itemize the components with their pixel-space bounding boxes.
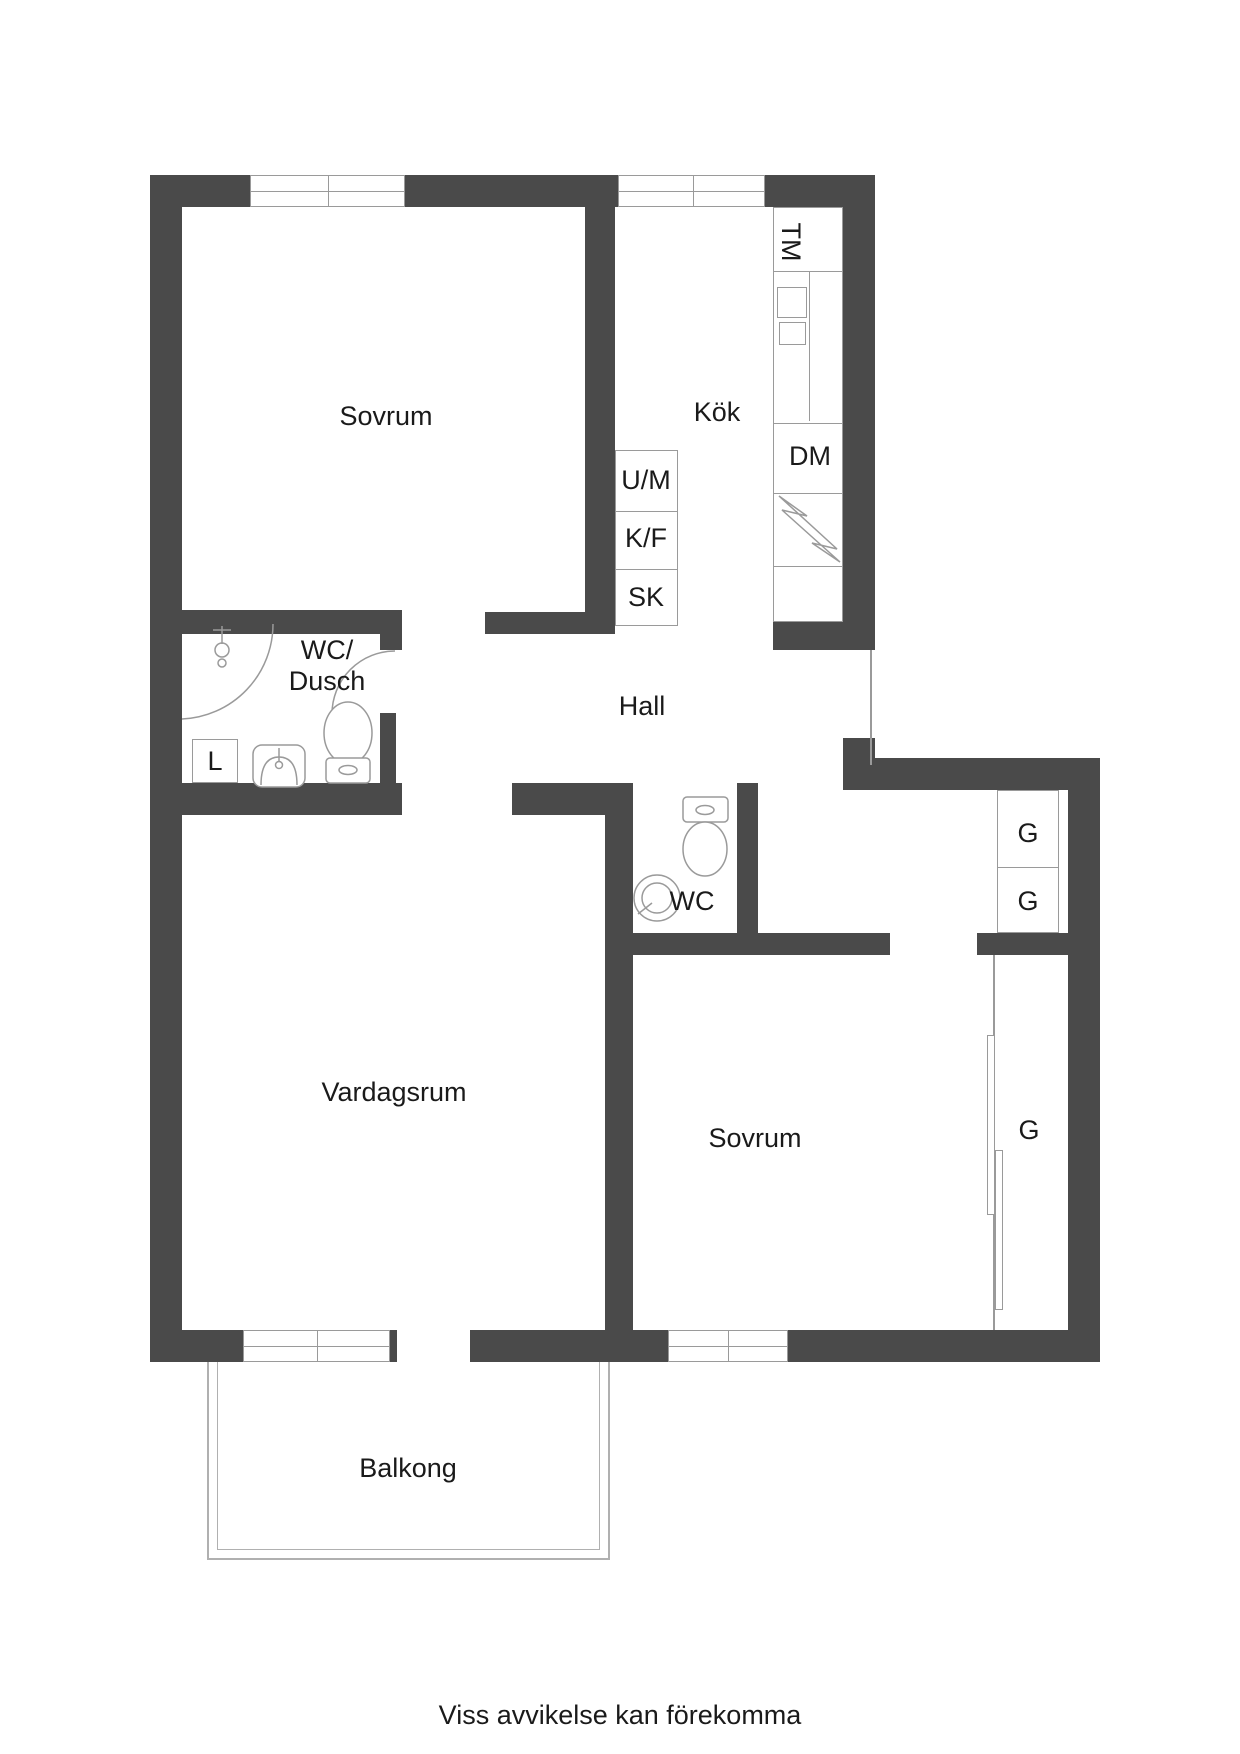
window-kitchen — [618, 175, 765, 207]
shower-arc — [182, 624, 273, 719]
window-bedroom2 — [668, 1330, 788, 1362]
room-label-wc: WC — [670, 886, 715, 916]
label-tall-cabinet: SK — [628, 582, 664, 612]
label-oven-microwave: U/M — [621, 465, 671, 495]
kitchen-sink-basin-1 — [777, 287, 807, 318]
room-label-kitchen: Kök — [694, 397, 741, 427]
wall-bedroom2-top-left — [633, 933, 890, 955]
window-livingroom — [243, 1330, 390, 1362]
room-label-hall: Hall — [619, 691, 666, 721]
disclaimer-text: Viss avvikelse kan förekomma — [0, 1700, 1240, 1731]
label-wardrobe-3: G — [1018, 1115, 1039, 1145]
sliding-door-panel-1 — [987, 1035, 995, 1215]
label-washing-machine: TM — [776, 223, 806, 262]
room-label-livingroom: Vardagsrum — [321, 1077, 466, 1107]
balcony-railing — [207, 1362, 610, 1560]
wall-hall-stub — [485, 612, 615, 634]
kitchen-sink-basin-2 — [779, 322, 806, 345]
wall-bathroom-bottom — [150, 783, 402, 815]
room-label-bathroom-line2: Dusch — [289, 666, 366, 696]
label-linen-cabinet: L — [207, 746, 222, 776]
wall-livingroom-bedroom2 — [605, 783, 633, 1330]
wall-wc-right — [737, 783, 758, 955]
label-dishwasher: DM — [789, 441, 831, 471]
wall-bottom-seg2 — [390, 1330, 397, 1362]
label-wardrobe-2: G — [1017, 886, 1038, 916]
room-label-bedroom2: Sovrum — [708, 1123, 801, 1153]
balcony-railing-inner — [217, 1362, 600, 1550]
label-fridge-freezer: K/F — [625, 523, 667, 553]
wall-bottom-seg1 — [150, 1330, 243, 1362]
wall-entry-top — [875, 758, 1068, 790]
room-label-bathroom-line1: WC/ — [301, 635, 353, 665]
label-wardrobe-1: G — [1017, 818, 1038, 848]
wall-kitchen-right — [843, 207, 875, 650]
wall-bedroom1-kitchen — [585, 207, 615, 634]
wall-left — [150, 175, 182, 1362]
wall-right — [1068, 758, 1100, 1362]
kitchen-counter — [773, 207, 843, 622]
wall-bathroom-door-jamb-upper — [380, 634, 402, 650]
wall-bottom-seg4 — [788, 1330, 1100, 1362]
bathroom-toilet-icon — [324, 702, 372, 783]
entrance-door-line — [870, 650, 872, 765]
wall-bedroom2-top-right — [977, 933, 1068, 955]
floor-plan: Sovrum Kök Hall WC/ Dusch WC Vardagsrum … — [0, 0, 1240, 1754]
wall-bottom-seg3 — [470, 1330, 668, 1362]
wc-toilet-icon — [683, 797, 728, 876]
balcony-door-opening — [397, 1330, 470, 1362]
window-bedroom1 — [250, 175, 405, 207]
wall-bathroom-door-jamb-lower — [380, 713, 396, 785]
sliding-door-panel-2 — [995, 1150, 1003, 1310]
room-label-bedroom1: Sovrum — [339, 401, 432, 431]
wall-bathroom-top — [150, 610, 402, 634]
wall-kitchen-bottom — [773, 622, 875, 650]
bathroom-sink-icon — [253, 745, 305, 787]
